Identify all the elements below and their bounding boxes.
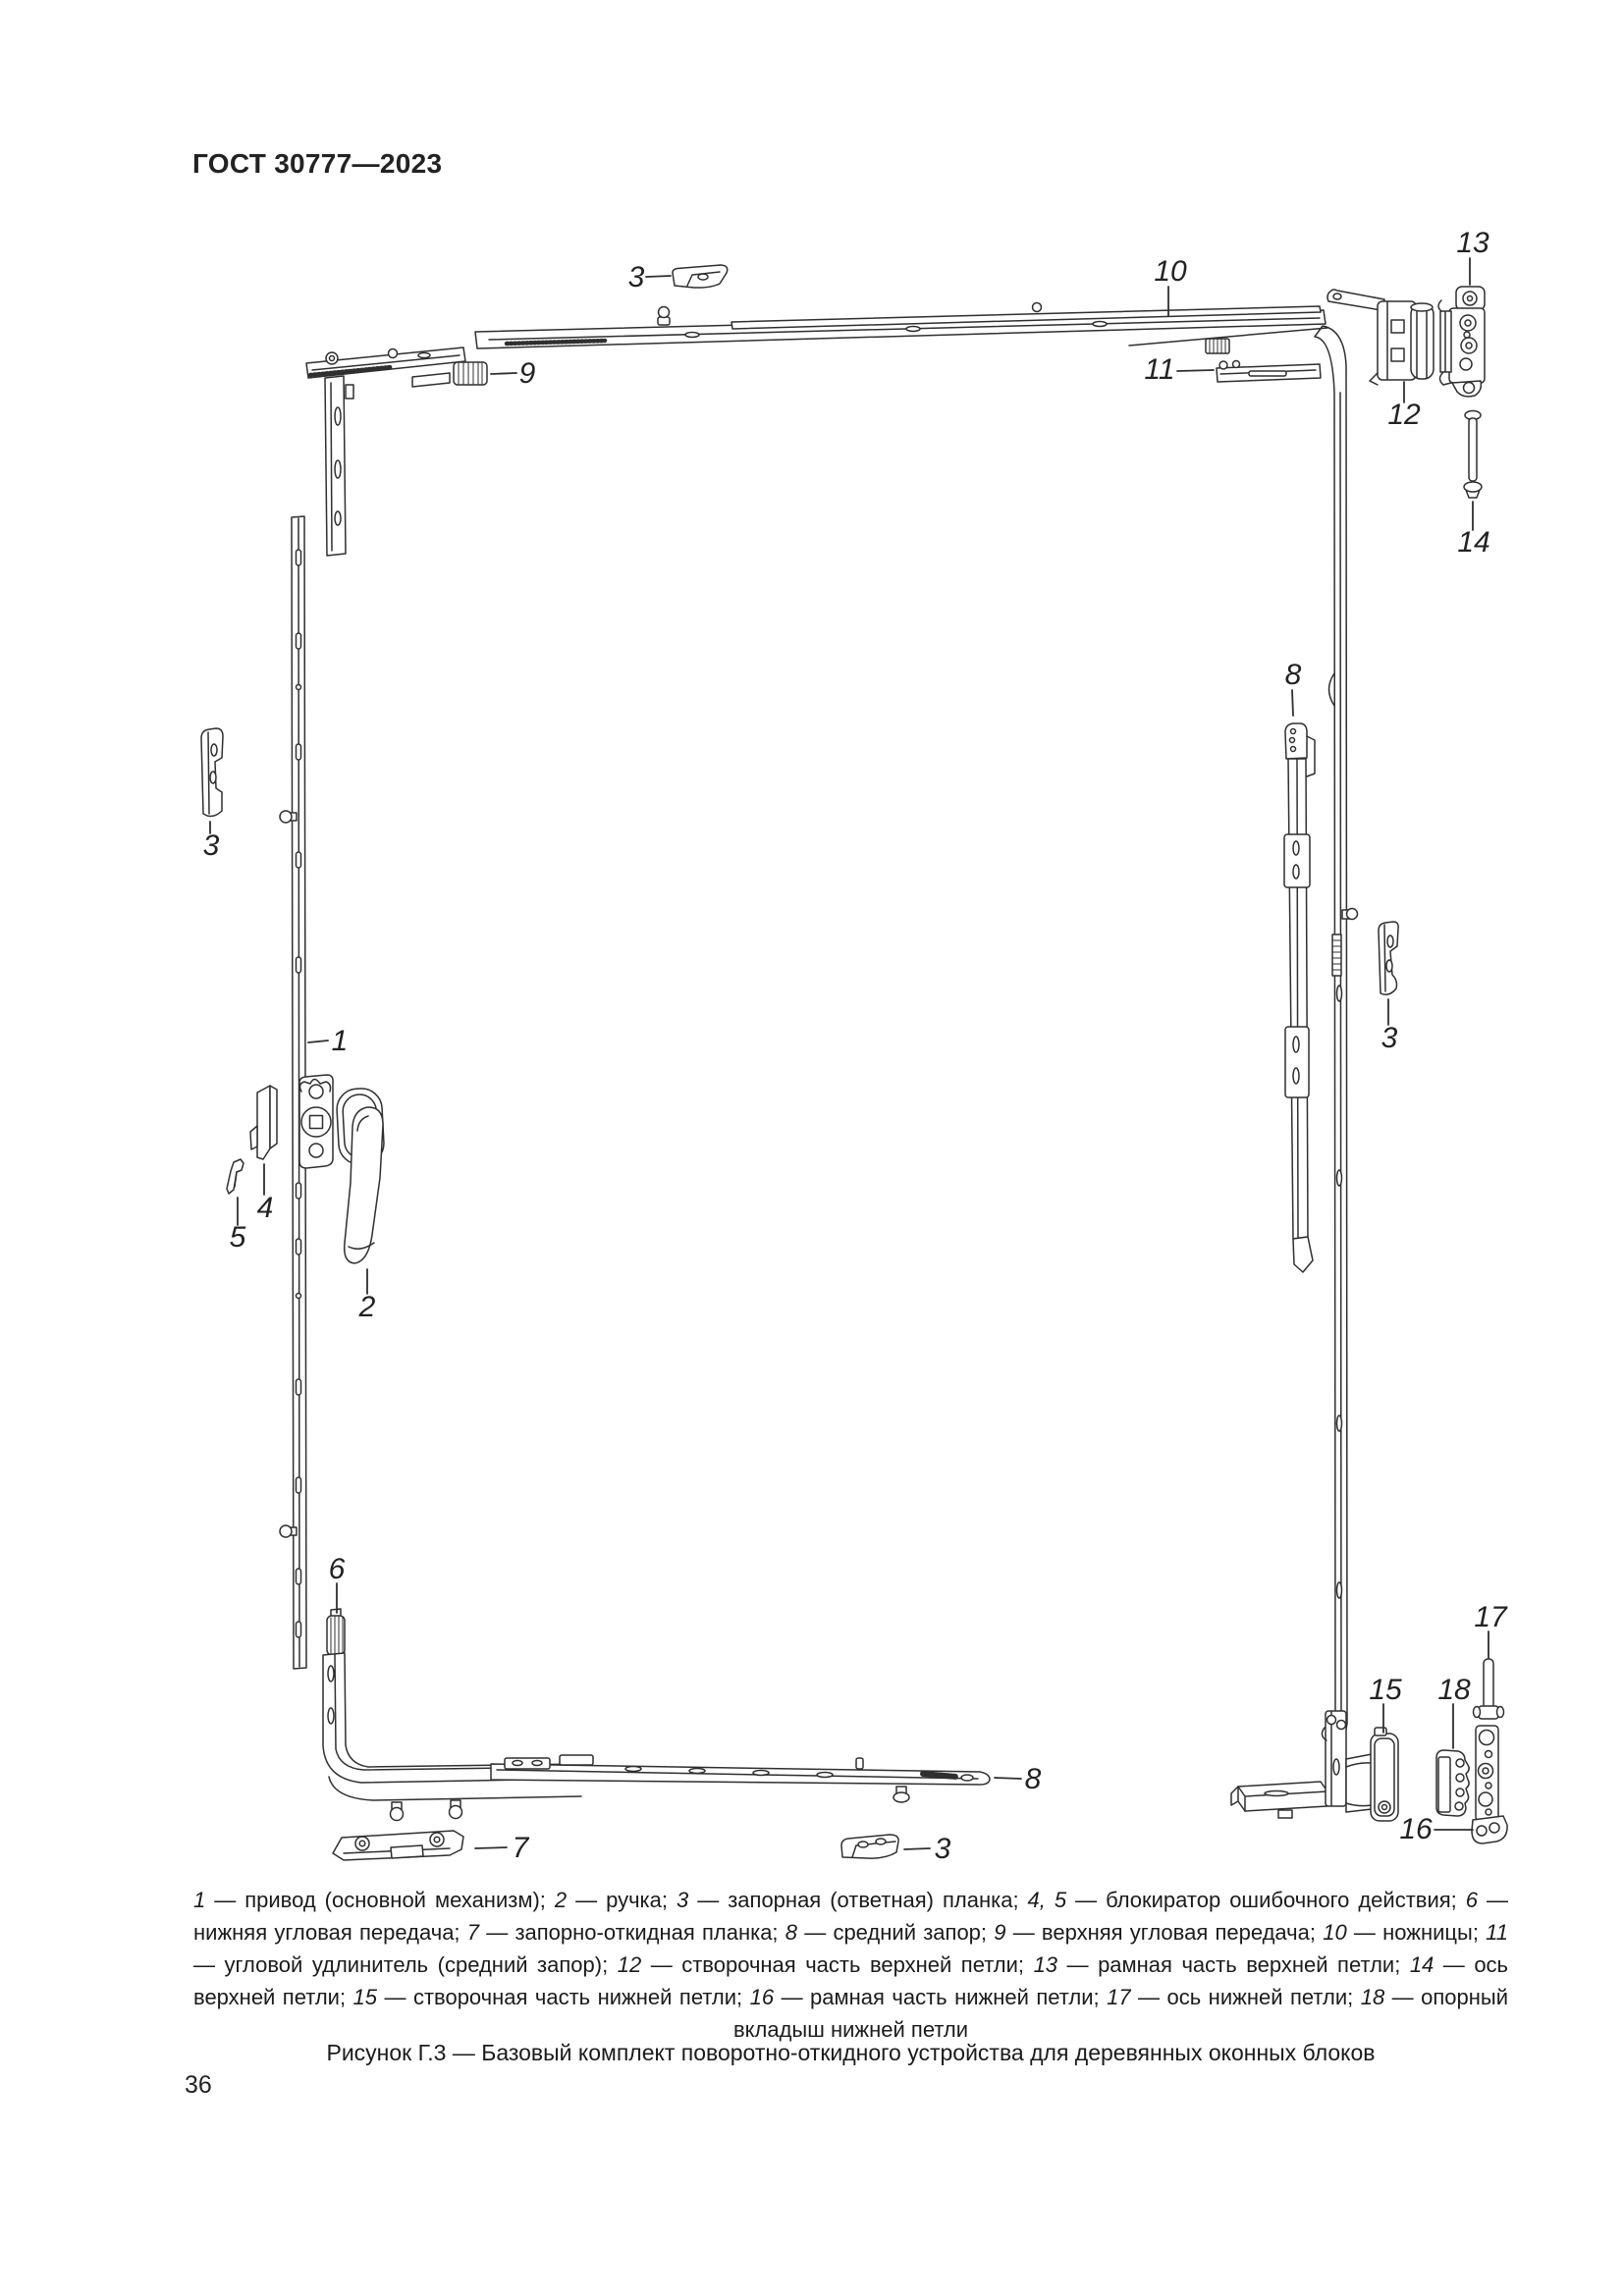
callout-18: 18: [1437, 1674, 1470, 1707]
part-top-corner-drive: [306, 347, 487, 556]
part-frame-right-bar: [1315, 326, 1358, 1740]
part-support-insert: [1436, 1750, 1469, 1816]
callout-2: 2: [359, 1291, 376, 1324]
part-blocker-5: [227, 1159, 244, 1194]
part-strike-plate-left: [201, 728, 223, 816]
callout-3-top: 3: [628, 261, 645, 294]
part-scissors: [475, 303, 1327, 354]
part-strike-plate-bottom: [841, 1835, 898, 1858]
callout-15: 15: [1369, 1674, 1401, 1707]
figure-caption: Рисунок Г.3 — Базовый комплект поворотно…: [193, 2040, 1508, 2066]
callout-1: 1: [332, 1025, 349, 1058]
callout-3-left: 3: [203, 829, 220, 863]
callout-12: 12: [1387, 399, 1420, 432]
part-gearbox: [299, 1075, 333, 1168]
part-corner-extension: [1217, 361, 1321, 383]
part-tilt-strike-plate: [333, 1831, 463, 1860]
part-bottom-hinge-frame: [1472, 1726, 1507, 1843]
callout-11: 11: [1144, 353, 1174, 387]
callout-8-bottom: 8: [1025, 1763, 1042, 1796]
callout-10: 10: [1154, 255, 1186, 289]
callout-6: 6: [329, 1553, 346, 1586]
callout-8-right: 8: [1285, 659, 1302, 692]
callout-3-bottom: 3: [935, 1833, 951, 1866]
callout-14: 14: [1457, 526, 1489, 560]
callout-9: 9: [519, 357, 536, 391]
part-strike-plate-top: [673, 265, 728, 288]
part-bottom-hinge-pin: [1474, 1659, 1504, 1719]
part-strike-plate-right: [1379, 922, 1398, 994]
part-middle-lock-bottom: [491, 1755, 990, 1802]
part-blocker-4: [250, 1086, 277, 1159]
callout-5: 5: [230, 1221, 246, 1255]
part-top-hinge-frame: [1438, 287, 1485, 397]
part-bottom-corner-drive: [323, 1609, 581, 1821]
callout-17: 17: [1474, 1601, 1506, 1634]
part-middle-lock-right: [1284, 723, 1315, 1272]
part-handle: [336, 1088, 385, 1263]
callout-4: 4: [257, 1192, 274, 1225]
callout-7: 7: [513, 1832, 529, 1865]
callout-13: 13: [1456, 227, 1489, 260]
callout-3-right: 3: [1381, 1022, 1398, 1055]
part-top-hinge-pin: [1464, 411, 1482, 499]
part-bottom-hinge-sash-group: [1231, 1711, 1398, 1821]
figure-legend: 1 — привод (основной механизм); 2 — ручк…: [193, 1884, 1508, 2046]
callout-16: 16: [1399, 1813, 1432, 1846]
page-number: 36: [185, 2071, 212, 2100]
document-page: ГОСТ 30777—2023: [0, 0, 1624, 2296]
